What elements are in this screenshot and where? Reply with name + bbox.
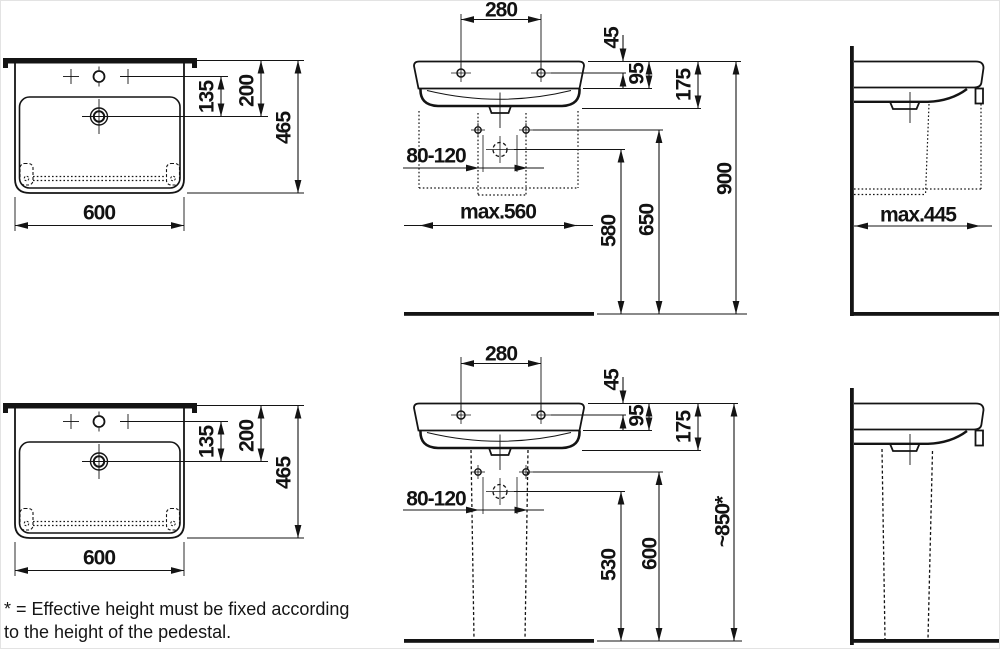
dim-label-fixing-height: 650 [637, 204, 658, 236]
rear-wall-edge [3, 403, 197, 409]
dim-label-outlet-range: 80-120 [406, 146, 465, 167]
dim-label-apron: 95 [627, 405, 648, 426]
dim-label-max-depth: max.445 [880, 205, 956, 226]
tap-hole-section [976, 89, 984, 104]
dim-label-rim-tap: 45 [602, 27, 623, 48]
basin-profile [854, 404, 984, 430]
dim-label-outlet-range: 80-120 [406, 489, 465, 510]
dim-label-apron: 95 [627, 63, 648, 84]
footnote: * = Effective height must be fixed accor… [4, 598, 349, 644]
dim-label-max-width: max.560 [460, 202, 536, 223]
tap-hole [94, 416, 105, 427]
dim-label-rear-drain: 200 [237, 420, 258, 452]
basin-underside [854, 431, 967, 444]
dim-label-outlet-height: 530 [599, 549, 620, 581]
dim-label-rim-tap: 45 [602, 369, 623, 390]
floor-line [404, 639, 594, 643]
tap-hole-section [976, 431, 984, 446]
basin-body [414, 62, 584, 89]
dim-label-fixing-height: 600 [640, 538, 661, 570]
footnote-line-2: to the height of the pedestal. [4, 621, 349, 644]
basin-outline [15, 64, 184, 194]
basin-profile [854, 62, 984, 88]
pedestal-outline [525, 450, 528, 639]
dim-label-rim-height: 900 [715, 163, 736, 195]
rear-wall-edge [3, 58, 197, 64]
dim-label-tap-drain: 135 [197, 81, 218, 113]
floor-line [850, 312, 999, 316]
dim-label-underside: 175 [674, 411, 695, 443]
dim-label-underside: 175 [674, 69, 695, 101]
dim-label-tap-distance: 280 [485, 0, 517, 21]
basin-underside [854, 89, 967, 102]
dim-label-rear-drain: 200 [237, 75, 258, 107]
tap-hole [94, 71, 105, 82]
basin-outline [15, 409, 184, 539]
dim-label-outlet-height: 580 [599, 215, 620, 247]
dim-label-width: 600 [83, 203, 115, 224]
dim-label-depth: 465 [274, 457, 295, 489]
footnote-line-1: * = Effective height must be fixed accor… [4, 598, 349, 621]
dim-label-depth: 465 [274, 112, 295, 144]
wall-line [850, 388, 854, 645]
pedestal-outline [471, 450, 474, 639]
side-view-pedestal [850, 388, 999, 645]
dim-label-tap-drain: 135 [197, 426, 218, 458]
plan-view-pedestal [3, 403, 304, 576]
side-view-wall-mount [850, 46, 999, 316]
plan-view-wall-mount [3, 58, 304, 231]
pedestal-outline [882, 449, 885, 639]
technical-drawing-canvas: 600 135 200 465 280 45 95 175 80-120 max… [0, 0, 1000, 649]
dim-label-rim-height: ~850* [713, 497, 734, 547]
dim-label-width: 600 [83, 548, 115, 569]
drawing-linework [1, 1, 1000, 649]
basin-body [414, 404, 584, 431]
wall-line [850, 46, 854, 316]
dim-label-tap-distance: 280 [485, 344, 517, 365]
pedestal-outline [928, 451, 933, 639]
floor-line [850, 639, 999, 643]
floor-line [404, 312, 594, 316]
